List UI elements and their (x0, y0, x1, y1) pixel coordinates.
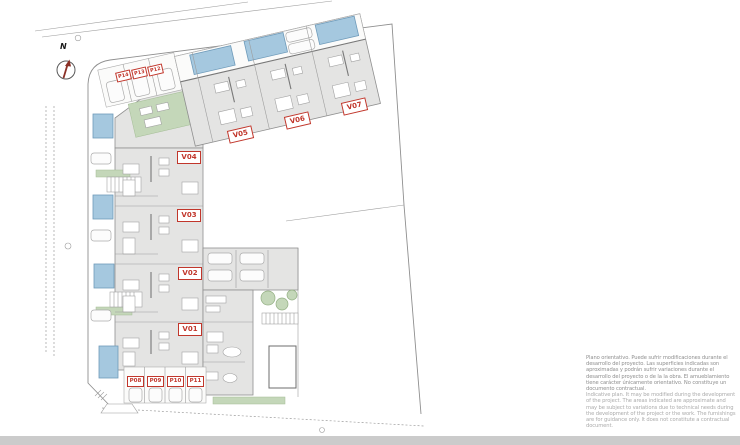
disclaimer-english: Indicative plan. It may be modified duri… (586, 392, 738, 429)
bottom-bar (0, 436, 740, 445)
parking-label-p11: P11 (187, 376, 204, 387)
unit-label-v02: V02 (178, 267, 202, 280)
pergola (262, 313, 298, 324)
unit-label-v04: V04 (177, 151, 201, 164)
building-communal (203, 248, 298, 404)
parking-label-p08: P08 (127, 376, 144, 387)
north-label: N (60, 42, 67, 51)
disclaimer-spanish: Plano orientativo. Puede sufrir modifica… (586, 355, 738, 392)
tree-icon (261, 290, 297, 310)
disclaimer-block: Plano orientativo. Puede sufrir modifica… (586, 355, 738, 429)
unit-label-v03: V03 (177, 209, 201, 222)
site-plan-canvas: N P14 P13 P12 V05 V06 V07 V04 V03 V02 V0… (0, 0, 740, 445)
unit-label-v01: V01 (178, 323, 202, 336)
communal-pool (269, 346, 296, 388)
garden-strip (213, 397, 285, 404)
parking-label-p10: P10 (167, 376, 184, 387)
parking-label-p09: P09 (147, 376, 164, 387)
north-arrow-icon (57, 60, 75, 80)
